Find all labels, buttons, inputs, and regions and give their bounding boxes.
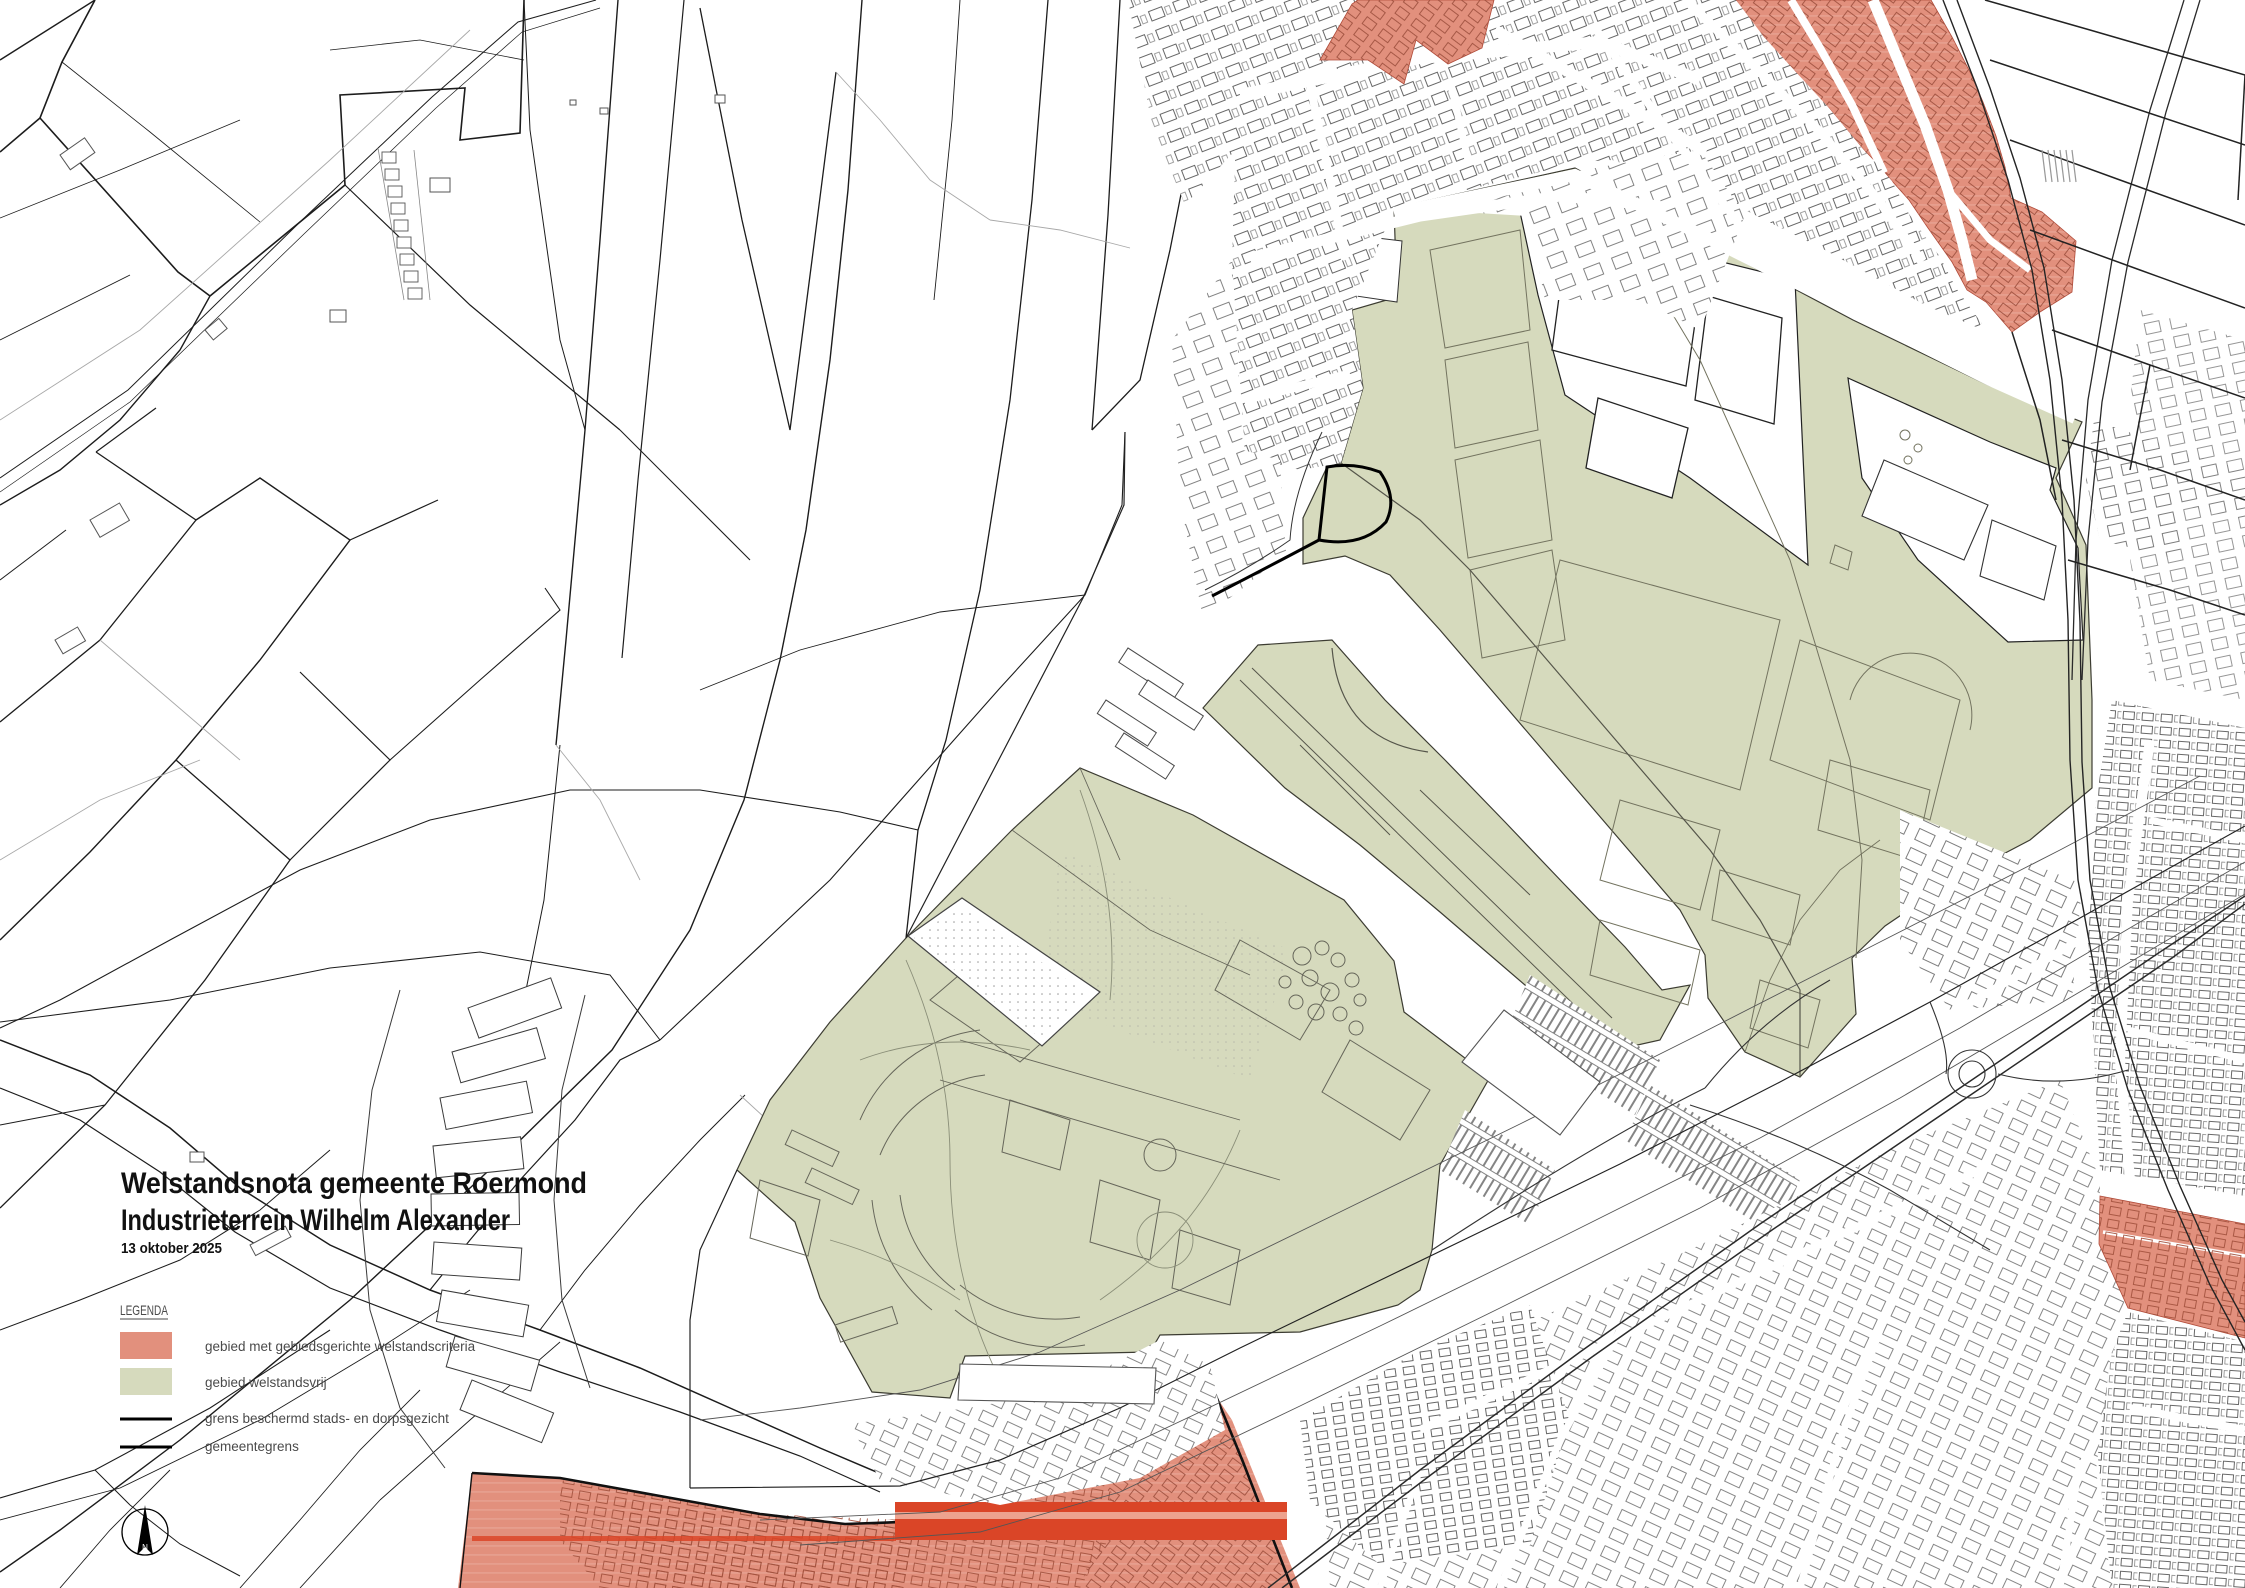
svg-text:LEGENDA: LEGENDA [120, 1302, 168, 1318]
svg-text:grens beschermd stads- en dorp: grens beschermd stads- en dorpsgezicht [205, 1411, 449, 1426]
svg-text:gemeentegrens: gemeentegrens [205, 1439, 299, 1454]
svg-text:Welstandsnota gemeente Roermon: Welstandsnota gemeente Roermond [121, 1167, 587, 1200]
svg-text:gebied welstandsvrij: gebied welstandsvrij [205, 1375, 327, 1390]
svg-text:gebied met gebiedsgerichte wel: gebied met gebiedsgerichte welstandscrit… [205, 1339, 476, 1354]
svg-text:13 oktober 2025: 13 oktober 2025 [121, 1240, 222, 1257]
svg-text:N: N [142, 1543, 148, 1552]
svg-text:Industrieterrein Wilhelm Alexa: Industrieterrein Wilhelm Alexander [121, 1204, 510, 1237]
